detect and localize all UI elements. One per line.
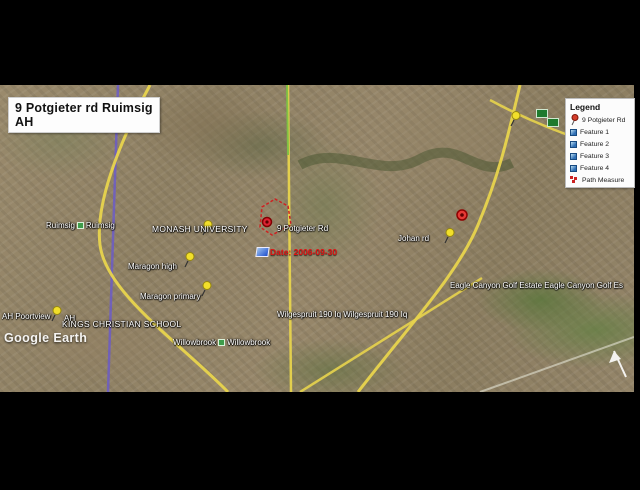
feature-2-icon: [570, 141, 577, 148]
legend-item: Feature 4: [570, 162, 634, 174]
grey-road-bottomright: [480, 337, 634, 392]
yellow-road-cross: [300, 278, 482, 392]
label-johan-rd: Johan rd: [398, 234, 429, 243]
road-sign-icon: [547, 118, 559, 127]
label-monash-university: MONASH UNIVERSITY: [152, 225, 248, 234]
red-circle-placemark-center: [460, 213, 464, 217]
river-shape: [300, 153, 512, 168]
legend-item: Path Measure: [570, 174, 634, 186]
label-ruimsig: RuimsigRuimsig: [46, 221, 115, 230]
yellow-road-right: [358, 85, 520, 392]
page-title: 9 Potgieter rd Ruimsig AH: [9, 101, 159, 129]
legend-title: Legend: [570, 102, 634, 112]
green-poi-icon: [218, 339, 225, 346]
label-9-potgieter-rd[interactable]: 9 Potgieter Rd: [277, 224, 328, 233]
yellow-pushpin-kings[interactable]: [50, 306, 62, 322]
google-earth-window: RuimsigRuimsig MONASH UNIVERSITY 9 Potgi…: [0, 0, 640, 490]
label-maragon-high: Maragon high: [128, 262, 177, 271]
feature-3-icon: [570, 153, 577, 160]
legend-panel: Legend 9 Potgieter Rd Feature 1 Feature …: [565, 98, 635, 188]
legend-item: Feature 3: [570, 150, 634, 162]
label-kings-christian-school: KINGS CHRISTIAN SCHOOL: [62, 320, 181, 329]
label-maragon-primary: Maragon primary: [140, 292, 200, 301]
yellow-pushpin-topright[interactable]: [509, 111, 521, 127]
legend-item: 9 Potgieter Rd: [570, 114, 634, 126]
green-poi-icon: [77, 222, 84, 229]
google-earth-watermark: Google Earth: [4, 331, 87, 345]
green-border-line: [287, 85, 288, 155]
legend-item: Feature 1: [570, 126, 634, 138]
label-eagle-canyon: Eagle Canyon Golf Estate Eagle Canyon Go…: [450, 281, 623, 290]
north-arrow-icon: [609, 351, 626, 377]
feature-4-icon: [570, 165, 577, 172]
yellow-pushpin-maragon-primary[interactable]: [200, 281, 212, 297]
potgieter-placemark-center: [265, 220, 268, 223]
yellow-pushpin-maragon-high[interactable]: [183, 252, 195, 268]
path-measure-icon: [570, 176, 579, 184]
title-box: 9 Potgieter rd Ruimsig AH: [8, 97, 160, 133]
imagery-date-icon: [255, 247, 269, 257]
label-wilgespruit: Wilgespruit 190 Iq Wilgespruit 190 Iq: [277, 310, 407, 319]
yellow-pushpin-johan[interactable]: [443, 228, 455, 244]
label-willowbrook: WillowbrookWillowbrook: [173, 338, 270, 347]
imagery-date-label: Date: 2006-09-30: [270, 247, 337, 257]
label-poortview: AH Poortview: [2, 312, 50, 321]
feature-1-icon: [570, 129, 577, 136]
road-sign-icon: [536, 109, 548, 118]
legend-item: Feature 2: [570, 138, 634, 150]
red-pushpin-icon: [570, 114, 579, 126]
